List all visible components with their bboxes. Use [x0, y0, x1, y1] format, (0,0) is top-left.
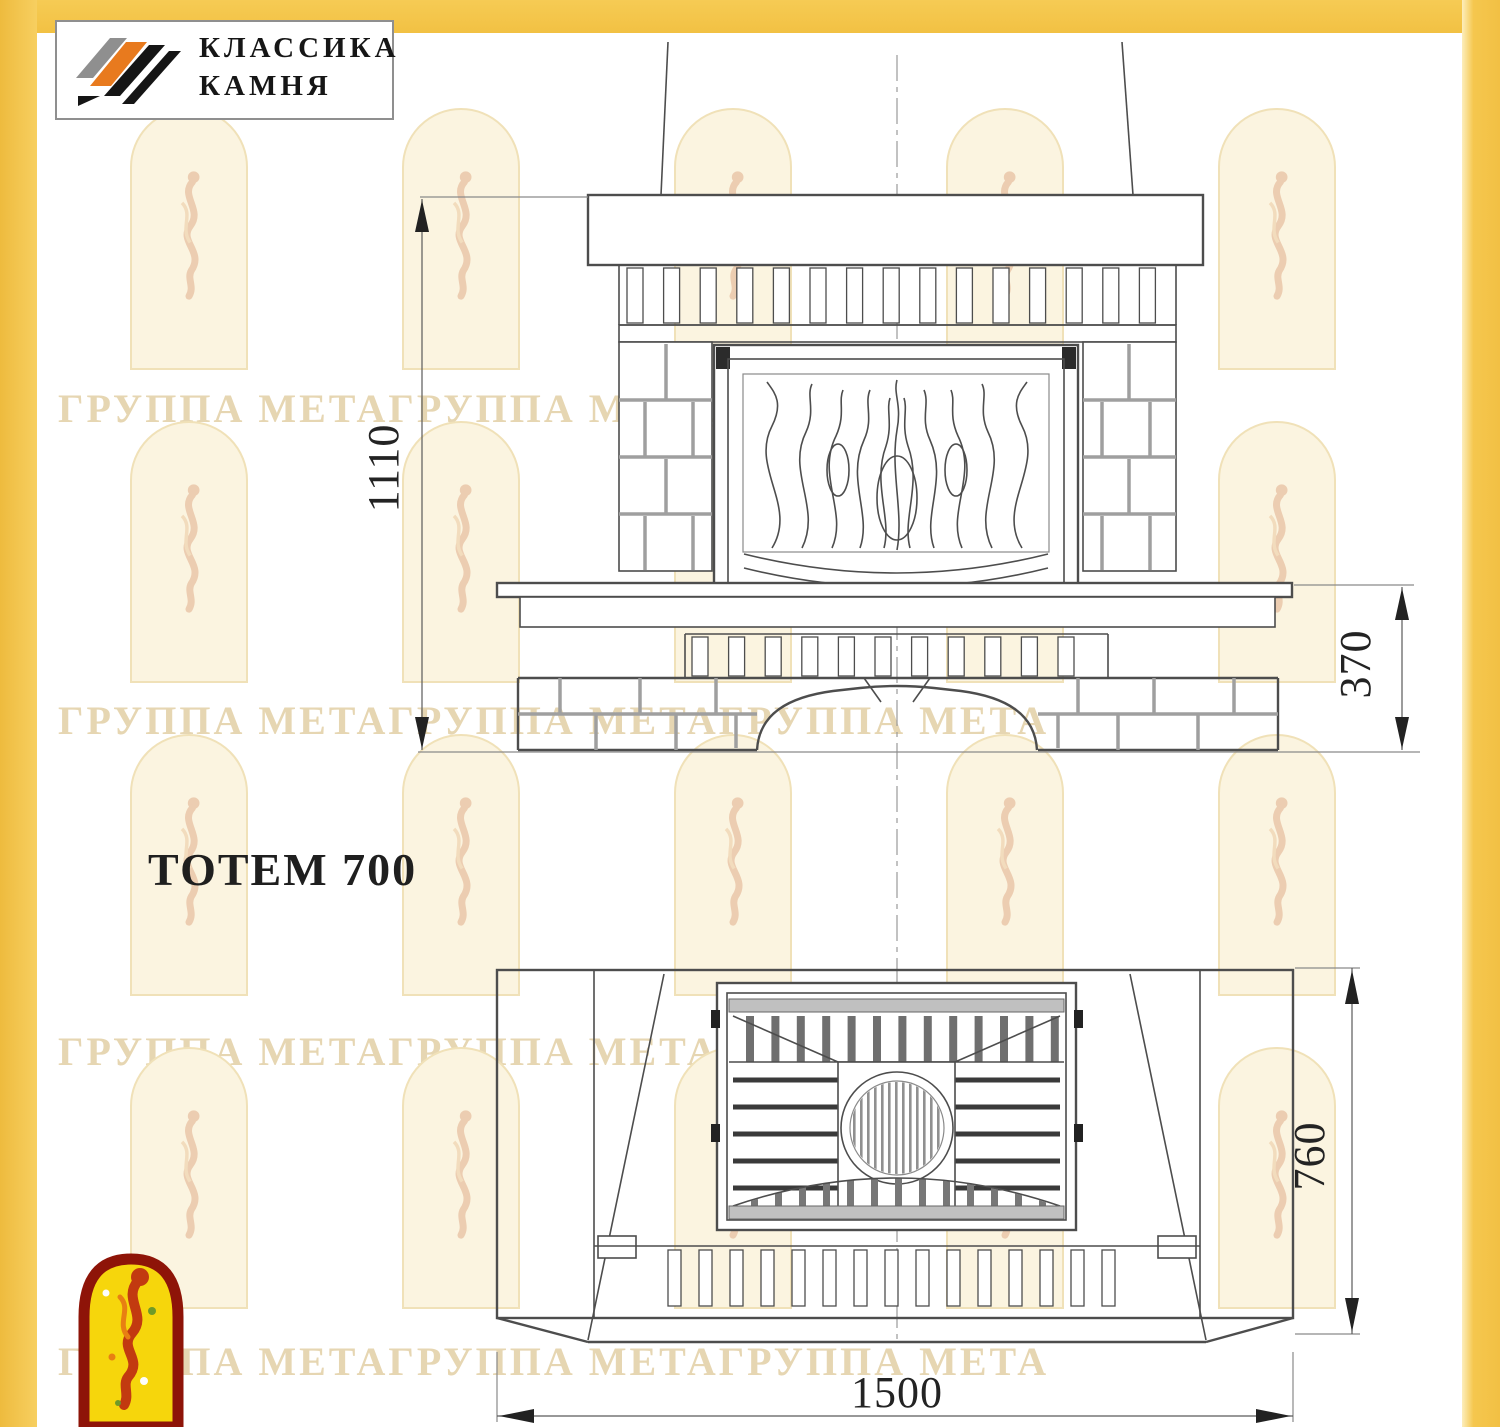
dim-label-height: 1110: [359, 424, 408, 513]
model-title: ТОТЕМ 700: [148, 843, 417, 896]
company-logo: КЛАССИКА КАМНЯ: [55, 20, 394, 120]
firebird-emblem-icon: [78, 1253, 184, 1427]
dim-label-width: 1500: [851, 1368, 943, 1417]
front-elevation-view: [418, 42, 1420, 752]
stone-stripes-logo-icon: [65, 28, 195, 113]
dim-label-plinth: 370: [1331, 630, 1380, 699]
plan-view: [497, 970, 1293, 1342]
page: ГРУППА МЕТАГРУППА МЕТАГРУППА МЕТА ГРУППА…: [0, 0, 1500, 1427]
logo-text-line2: КАМНЯ: [199, 70, 332, 103]
page-border-left: [0, 0, 37, 1427]
dim-label-depth: 760: [1285, 1122, 1334, 1191]
fireplace-technical-drawing: 1110 370 760 1500: [0, 0, 1500, 1427]
page-border-right: [1462, 0, 1500, 1427]
logo-text-line1: КЛАССИКА: [199, 32, 400, 65]
